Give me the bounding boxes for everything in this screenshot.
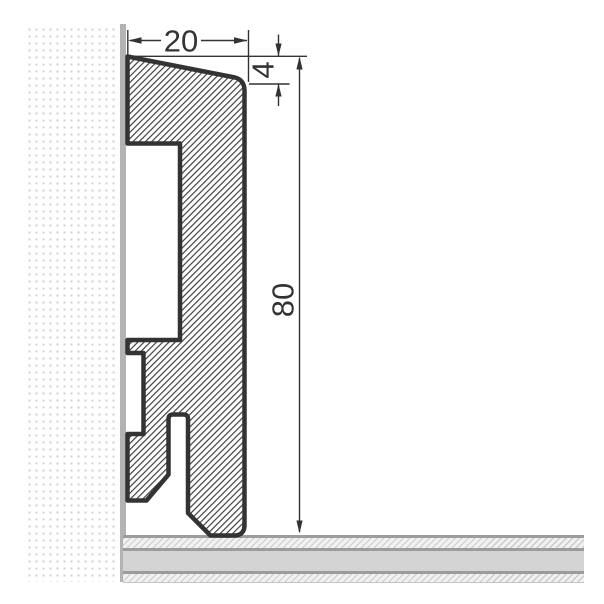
arrow-down-icon: [275, 44, 281, 57]
arrow-up-icon: [275, 84, 281, 97]
arrow-down-icon: [296, 521, 302, 534]
skirting-profile-outline: [128, 57, 245, 536]
dimension-top-edge: 4: [246, 35, 290, 107]
dimension-height: 80: [266, 57, 303, 534]
profile-drawing: 20 4 80: [0, 0, 604, 604]
arrow-right-icon: [234, 37, 248, 43]
technical-drawing-canvas: 20 4 80: [0, 0, 604, 604]
dimension-top-edge-label: 4: [246, 61, 281, 78]
dimension-width-label: 20: [164, 24, 198, 59]
arrow-left-icon: [128, 37, 142, 43]
arrow-up-icon: [296, 57, 302, 70]
dimension-height-label: 80: [266, 283, 301, 317]
